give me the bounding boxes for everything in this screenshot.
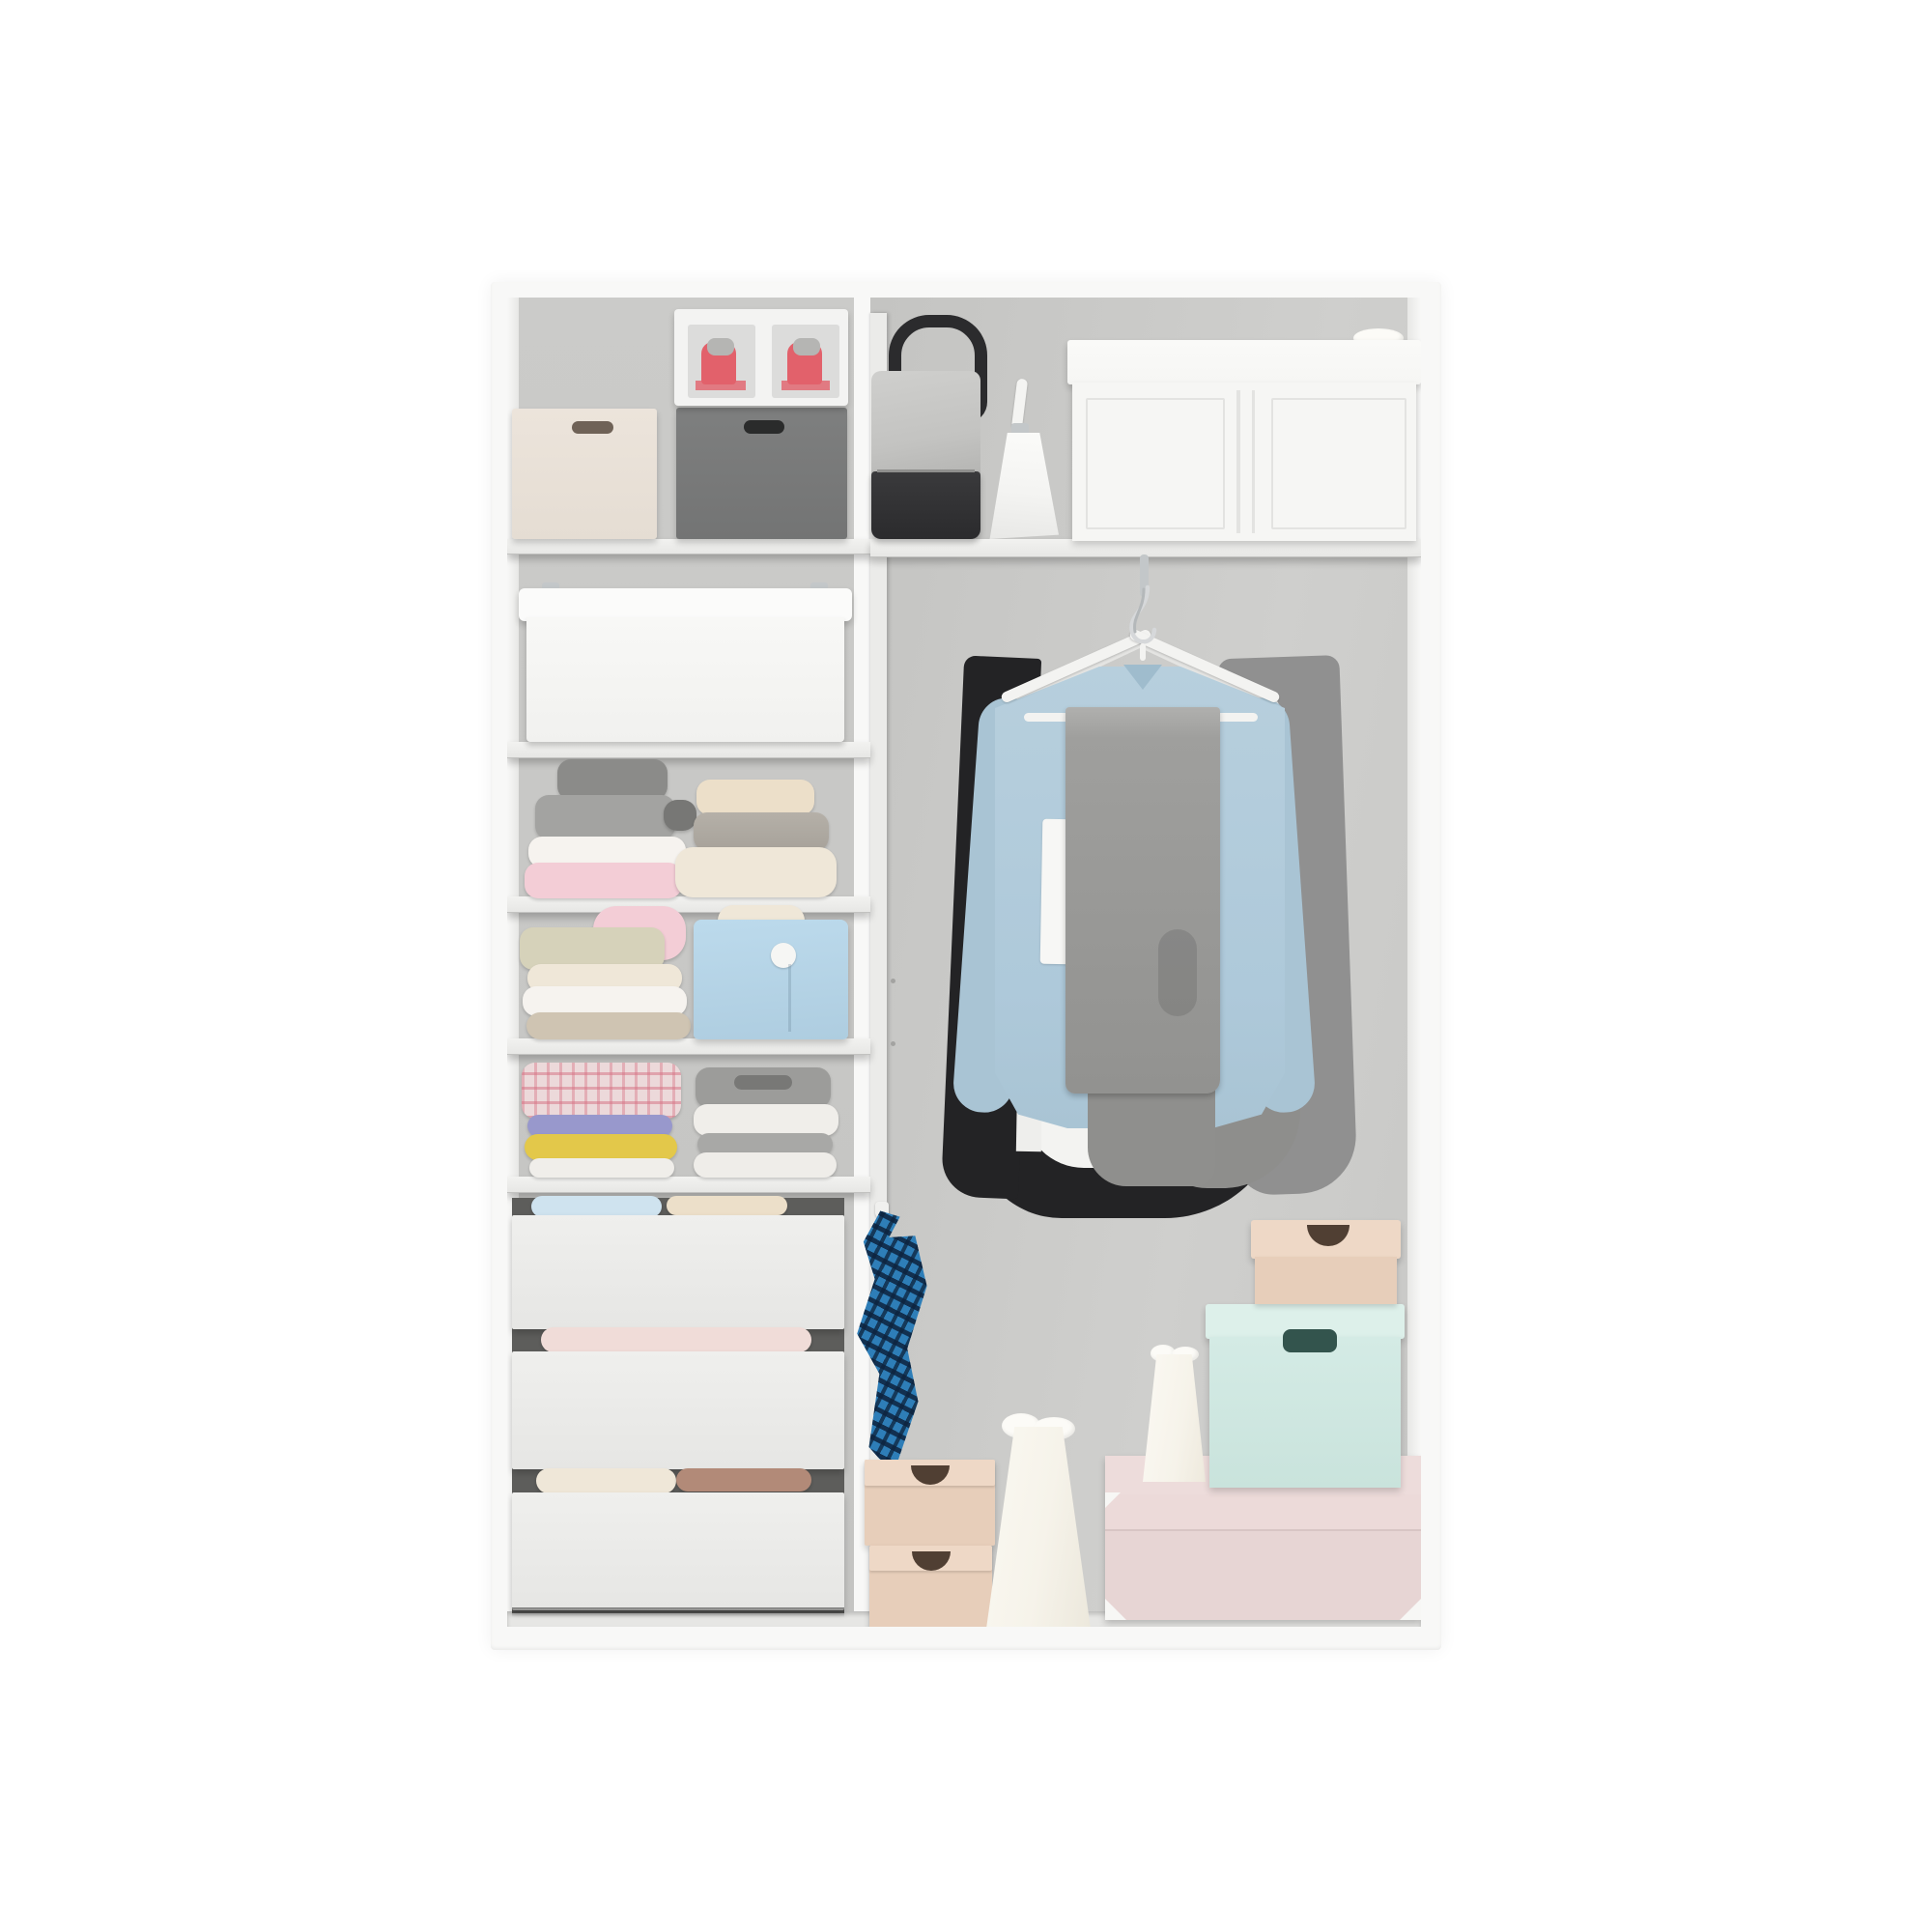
tucked-clothes-knit <box>536 1468 676 1493</box>
folded-sweater <box>694 812 829 851</box>
black-handbag <box>871 315 980 539</box>
pants-folded <box>1065 707 1220 1094</box>
basket-button <box>771 943 796 968</box>
mint-box-handle-slot <box>1283 1329 1337 1352</box>
left-shelf-1 <box>507 539 870 554</box>
drawer-3 <box>512 1492 844 1610</box>
wardrobe-interior <box>507 298 1421 1627</box>
sneaker-detail <box>793 338 820 355</box>
gray-box-handle-slot <box>744 420 784 434</box>
basket-seam <box>788 964 791 1032</box>
cream-box-handle-slot <box>572 421 613 434</box>
blue-fabric-basket <box>694 920 848 1039</box>
tall-paper-bag <box>986 1413 1091 1627</box>
beige-shoe-box <box>869 1546 992 1627</box>
paper-bag-body <box>986 1427 1091 1627</box>
white-box-lid <box>1067 340 1421 384</box>
wardrobe-cabinet <box>491 282 1441 1650</box>
white-handbag <box>985 379 1059 539</box>
tucked-clothes-brown <box>676 1468 811 1492</box>
handbag-fabric <box>871 371 980 483</box>
pants-legs <box>1088 1090 1215 1186</box>
small-beige-box <box>1251 1220 1401 1304</box>
mint-box-body <box>1209 1337 1401 1488</box>
sneaker-sole <box>781 381 830 390</box>
folded-shirt <box>525 1134 677 1160</box>
cream-storage-box <box>512 409 657 539</box>
folded-shirt <box>694 1152 837 1178</box>
sneaker-detail <box>707 338 734 355</box>
small-paper-bag <box>1143 1345 1206 1482</box>
left-shelf-2 <box>507 742 870 758</box>
sneaker-sole <box>696 381 746 390</box>
folded-sweater <box>696 780 814 815</box>
white-storage-bin <box>519 586 852 742</box>
shoe-box-window <box>772 325 839 398</box>
white-box-seam <box>1252 390 1255 533</box>
tucked-clothes-blue <box>531 1196 662 1217</box>
divider-peg-hole <box>891 979 895 983</box>
bin-body <box>526 617 844 742</box>
folded-sweater <box>535 795 675 839</box>
clear-shoe-box <box>674 309 848 406</box>
pants-pocket-shadow <box>1158 929 1197 1016</box>
left-shelf-4 <box>507 1038 870 1055</box>
large-white-storage-box <box>1067 328 1421 541</box>
shoe-box-window <box>688 325 755 398</box>
folded-shirt <box>694 1104 838 1136</box>
folded-linen <box>526 1012 691 1039</box>
divider-peg-hole <box>891 1041 895 1046</box>
mint-storage-box <box>1209 1304 1401 1488</box>
drawer-1 <box>512 1215 844 1329</box>
white-box-panel <box>1271 398 1406 529</box>
tucked-clothes-blush <box>541 1327 811 1352</box>
folded-sweater <box>675 847 837 897</box>
beige-shoe-box <box>865 1460 995 1546</box>
tucked-clothes-cream <box>667 1196 787 1215</box>
white-bag-handle <box>1011 379 1028 430</box>
folded-sweater <box>557 759 668 800</box>
drawer-2 <box>512 1351 844 1469</box>
shirt-fold-detail <box>734 1075 792 1090</box>
handbag-leather-base <box>871 471 980 539</box>
white-box-seam <box>1236 390 1240 533</box>
folded-shirt <box>696 1067 831 1108</box>
rod-hook-icon <box>1121 554 1165 661</box>
left-shelf-3 <box>507 896 870 913</box>
paper-bag-body <box>1143 1354 1206 1482</box>
pink-box-body <box>1105 1531 1421 1620</box>
white-box-body <box>1072 383 1416 541</box>
folded-shirt <box>529 1158 674 1178</box>
beige-box-body <box>1255 1257 1397 1304</box>
white-bag-body <box>985 433 1059 539</box>
bin-rim <box>519 588 852 621</box>
white-box-panel <box>1086 398 1225 529</box>
folded-plaid-shirt <box>522 1063 681 1119</box>
left-shelf-5 <box>507 1177 870 1193</box>
drawer-base-shadow <box>512 1607 844 1617</box>
product-photo-page: { "scene": { "type": "product-photo", "d… <box>0 0 1932 1932</box>
dark-gray-storage-box <box>676 408 847 539</box>
folded-sweater <box>664 800 696 831</box>
folded-sweater <box>525 863 682 898</box>
handbag-zipper <box>877 469 975 472</box>
pink-box-lid-front <box>1105 1494 1421 1531</box>
